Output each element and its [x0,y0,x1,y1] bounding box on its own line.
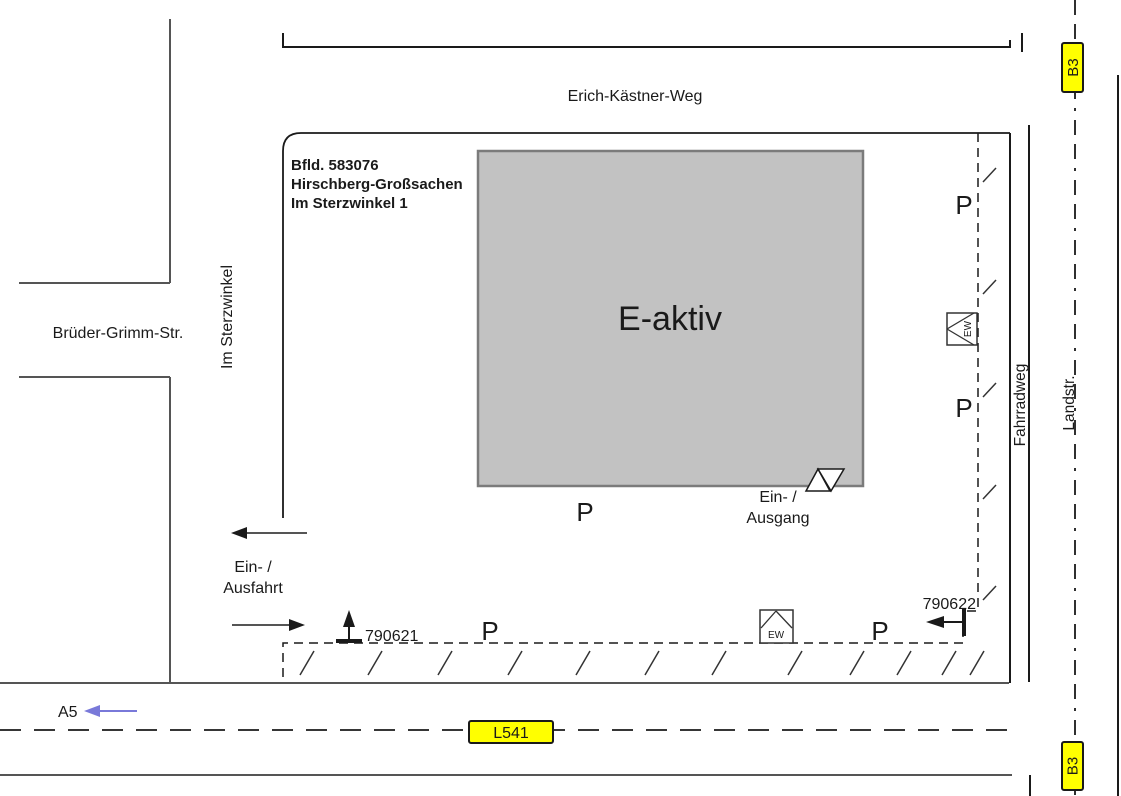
parcel-info-line3: Im Sterzwinkel 1 [291,195,408,212]
hatch-mark [850,651,864,675]
erich-kastner-weg-south-edge [283,33,1010,47]
ew-station-right: EW [947,313,977,345]
marker-790621-label: 790621 [365,628,418,645]
site-entrance-exit: Ein- / Ausfahrt [223,527,307,631]
hatch-mark [970,651,984,675]
hatch-mark [983,485,996,499]
hatch-mark [897,651,911,675]
hatch-mark [368,651,382,675]
ew-station-bottom: EW [760,610,793,643]
hatch-mark [983,586,996,600]
parking-hatches-right [983,168,996,600]
hatch-mark [983,383,996,397]
parking-p-right-top: P [955,190,972,220]
site-map-svg: E-aktiv Bfld. 583076 Hirschberg-Großsach… [0,0,1121,796]
street-label-fahrradweg: Fahrradweg [1012,364,1029,447]
site-entrance-label-line2: Ausfahrt [223,580,283,597]
parking-hatches-bottom [300,651,984,675]
hatch-mark [438,651,452,675]
ew-label: EW [963,320,974,337]
ew-label: EW [768,630,785,641]
site-map: E-aktiv Bfld. 583076 Hirschberg-Großsach… [0,0,1121,796]
hatch-mark [300,651,314,675]
hatch-mark [508,651,522,675]
a5-label: A5 [58,704,78,721]
building-label: E-aktiv [618,300,722,338]
parking-p-right-mid: P [955,393,972,423]
parcel-info-line1: Bfld. 583076 [291,157,379,174]
street-label-bruder-grimm-str: Brüder-Grimm-Str. [53,325,184,342]
hatch-mark [788,651,802,675]
road-sign-b3-bottom: B3 [1062,742,1083,790]
parking-p-south-of-building: P [576,497,593,527]
entry-arrow-head-icon [289,619,305,631]
b3-sign-label: B3 [1065,757,1082,775]
street-label-im-sterzwinkel: Im Sterzwinkel [219,265,236,369]
exit-arrow-head-icon [231,527,247,539]
survey-marker-790622: 790622 [923,596,976,636]
l541-sign-label: L541 [493,725,529,742]
marker-arrow-left-icon [926,616,944,628]
marker-arrow-up-icon [343,610,355,627]
survey-marker-790621: 790621 [336,610,418,645]
parking-p-bottom-right: P [871,616,888,646]
hatch-mark [576,651,590,675]
street-label-erich-kastner-weg: Erich-Kästner-Weg [568,88,703,105]
marker-790622-label: 790622 [923,596,976,613]
site-entrance-label-line1: Ein- / [234,559,272,576]
hatch-mark [942,651,956,675]
road-sign-b3-top: B3 [1062,43,1083,92]
building-entrance-label-line1: Ein- / [759,489,797,506]
b3-sign-label: B3 [1065,58,1082,76]
street-label-landstr: Landstr. [1061,375,1078,430]
parcel-info-line2: Hirschberg-Großsachen [291,176,463,193]
a5-arrow-head-icon [84,705,100,717]
hatch-mark [645,651,659,675]
hatch-mark [983,280,996,294]
hatch-mark [983,168,996,182]
hatch-mark [712,651,726,675]
parking-p-bottom-left: P [481,616,498,646]
building-entrance-label-line2: Ausgang [746,510,809,527]
road-sign-l541: L541 [469,721,553,743]
parcel-info: Bfld. 583076 Hirschberg-Großsachen Im St… [291,157,463,212]
a5-reference: A5 [58,704,137,721]
